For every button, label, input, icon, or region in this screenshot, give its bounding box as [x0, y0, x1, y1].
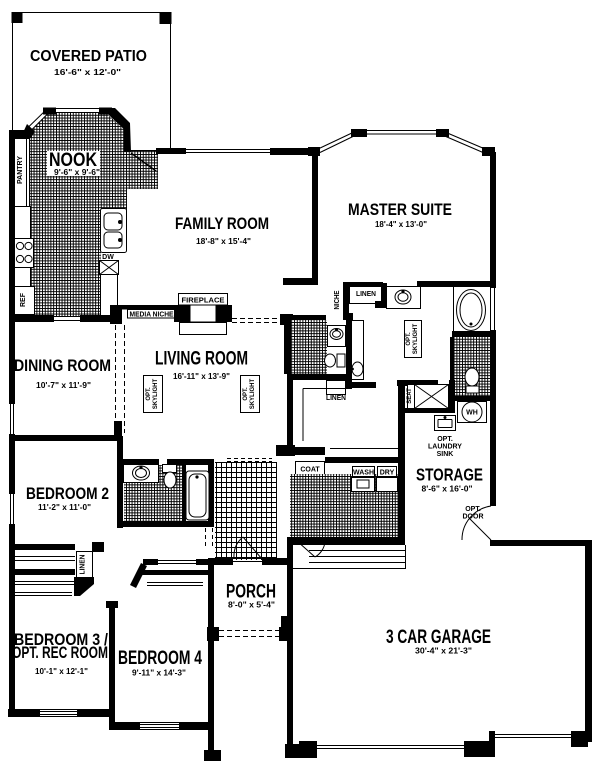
svg-text:OPT.: OPT.	[437, 436, 453, 443]
svg-text:SKYLIGHT: SKYLIGHT	[250, 379, 256, 410]
svg-text:LINEN: LINEN	[356, 291, 376, 298]
svg-text:BEDROOM 2: BEDROOM 2	[26, 484, 109, 503]
svg-text:LAUNDRY: LAUNDRY	[428, 444, 462, 451]
svg-text:SEAT: SEAT	[407, 388, 413, 404]
svg-text:MASTER SUITE: MASTER SUITE	[348, 200, 452, 219]
svg-text:MEDIA NICHE: MEDIA NICHE	[130, 312, 174, 319]
svg-text:NICHE: NICHE	[334, 290, 341, 309]
svg-text:8'-0" x 5'-4": 8'-0" x 5'-4"	[228, 601, 275, 610]
svg-text:WASH: WASH	[353, 470, 374, 477]
svg-text:16'-6" x 12'-0": 16'-6" x 12'-0"	[54, 68, 121, 77]
svg-text:DW: DW	[102, 254, 114, 261]
svg-text:18'-4" x 13'-0": 18'-4" x 13'-0"	[375, 220, 427, 229]
svg-text:DINING ROOM: DINING ROOM	[14, 356, 111, 375]
svg-text:3 CAR GARAGE: 3 CAR GARAGE	[386, 626, 491, 648]
svg-text:REF: REF	[20, 292, 27, 307]
svg-text:COAT: COAT	[300, 467, 320, 474]
svg-text:DRY: DRY	[380, 470, 395, 477]
svg-text:OPT.: OPT.	[406, 332, 412, 346]
svg-text:16'-11" x 13'-9": 16'-11" x 13'-9"	[173, 372, 230, 381]
svg-text:18'-8" x 15'-4": 18'-8" x 15'-4"	[196, 237, 251, 246]
svg-text:FIREPLACE: FIREPLACE	[182, 298, 225, 305]
svg-text:PANTRY: PANTRY	[17, 156, 24, 184]
svg-text:9'-11" x 14'-3": 9'-11" x 14'-3"	[132, 669, 186, 678]
svg-text:OPT. REC ROOM: OPT. REC ROOM	[12, 643, 108, 662]
svg-text:SKYLIGHT: SKYLIGHT	[153, 379, 159, 410]
svg-text:10'-7" x 11'-9": 10'-7" x 11'-9"	[36, 381, 91, 390]
svg-text:LIVING ROOM: LIVING ROOM	[155, 349, 248, 370]
svg-text:LINEN: LINEN	[326, 395, 346, 402]
svg-text:OPT.: OPT.	[146, 387, 152, 401]
svg-text:WH: WH	[466, 410, 478, 417]
svg-text:11'-2" x 11'-0": 11'-2" x 11'-0"	[38, 503, 91, 512]
svg-text:30'-4" x 21'-3": 30'-4" x 21'-3"	[415, 647, 472, 656]
svg-text:PORCH: PORCH	[226, 581, 276, 603]
svg-text:OPT.: OPT.	[243, 387, 249, 401]
svg-text:COVERED PATIO: COVERED PATIO	[30, 48, 147, 65]
svg-text:LINEN: LINEN	[80, 555, 87, 575]
svg-text:SKYLIGHT: SKYLIGHT	[413, 324, 419, 355]
svg-text:STORAGE: STORAGE	[416, 465, 483, 485]
svg-text:10'-1" x 12'-1": 10'-1" x 12'-1"	[35, 667, 88, 676]
svg-text:8'-6" x 16'-0": 8'-6" x 16'-0"	[422, 485, 473, 494]
svg-text:SINK: SINK	[437, 451, 454, 458]
svg-text:BEDROOM 4: BEDROOM 4	[118, 647, 202, 669]
svg-text:OPT.: OPT.	[465, 506, 481, 513]
svg-text:9'-6" x 9'-6": 9'-6" x 9'-6"	[54, 168, 100, 177]
svg-text:FAMILY ROOM: FAMILY ROOM	[175, 214, 269, 233]
